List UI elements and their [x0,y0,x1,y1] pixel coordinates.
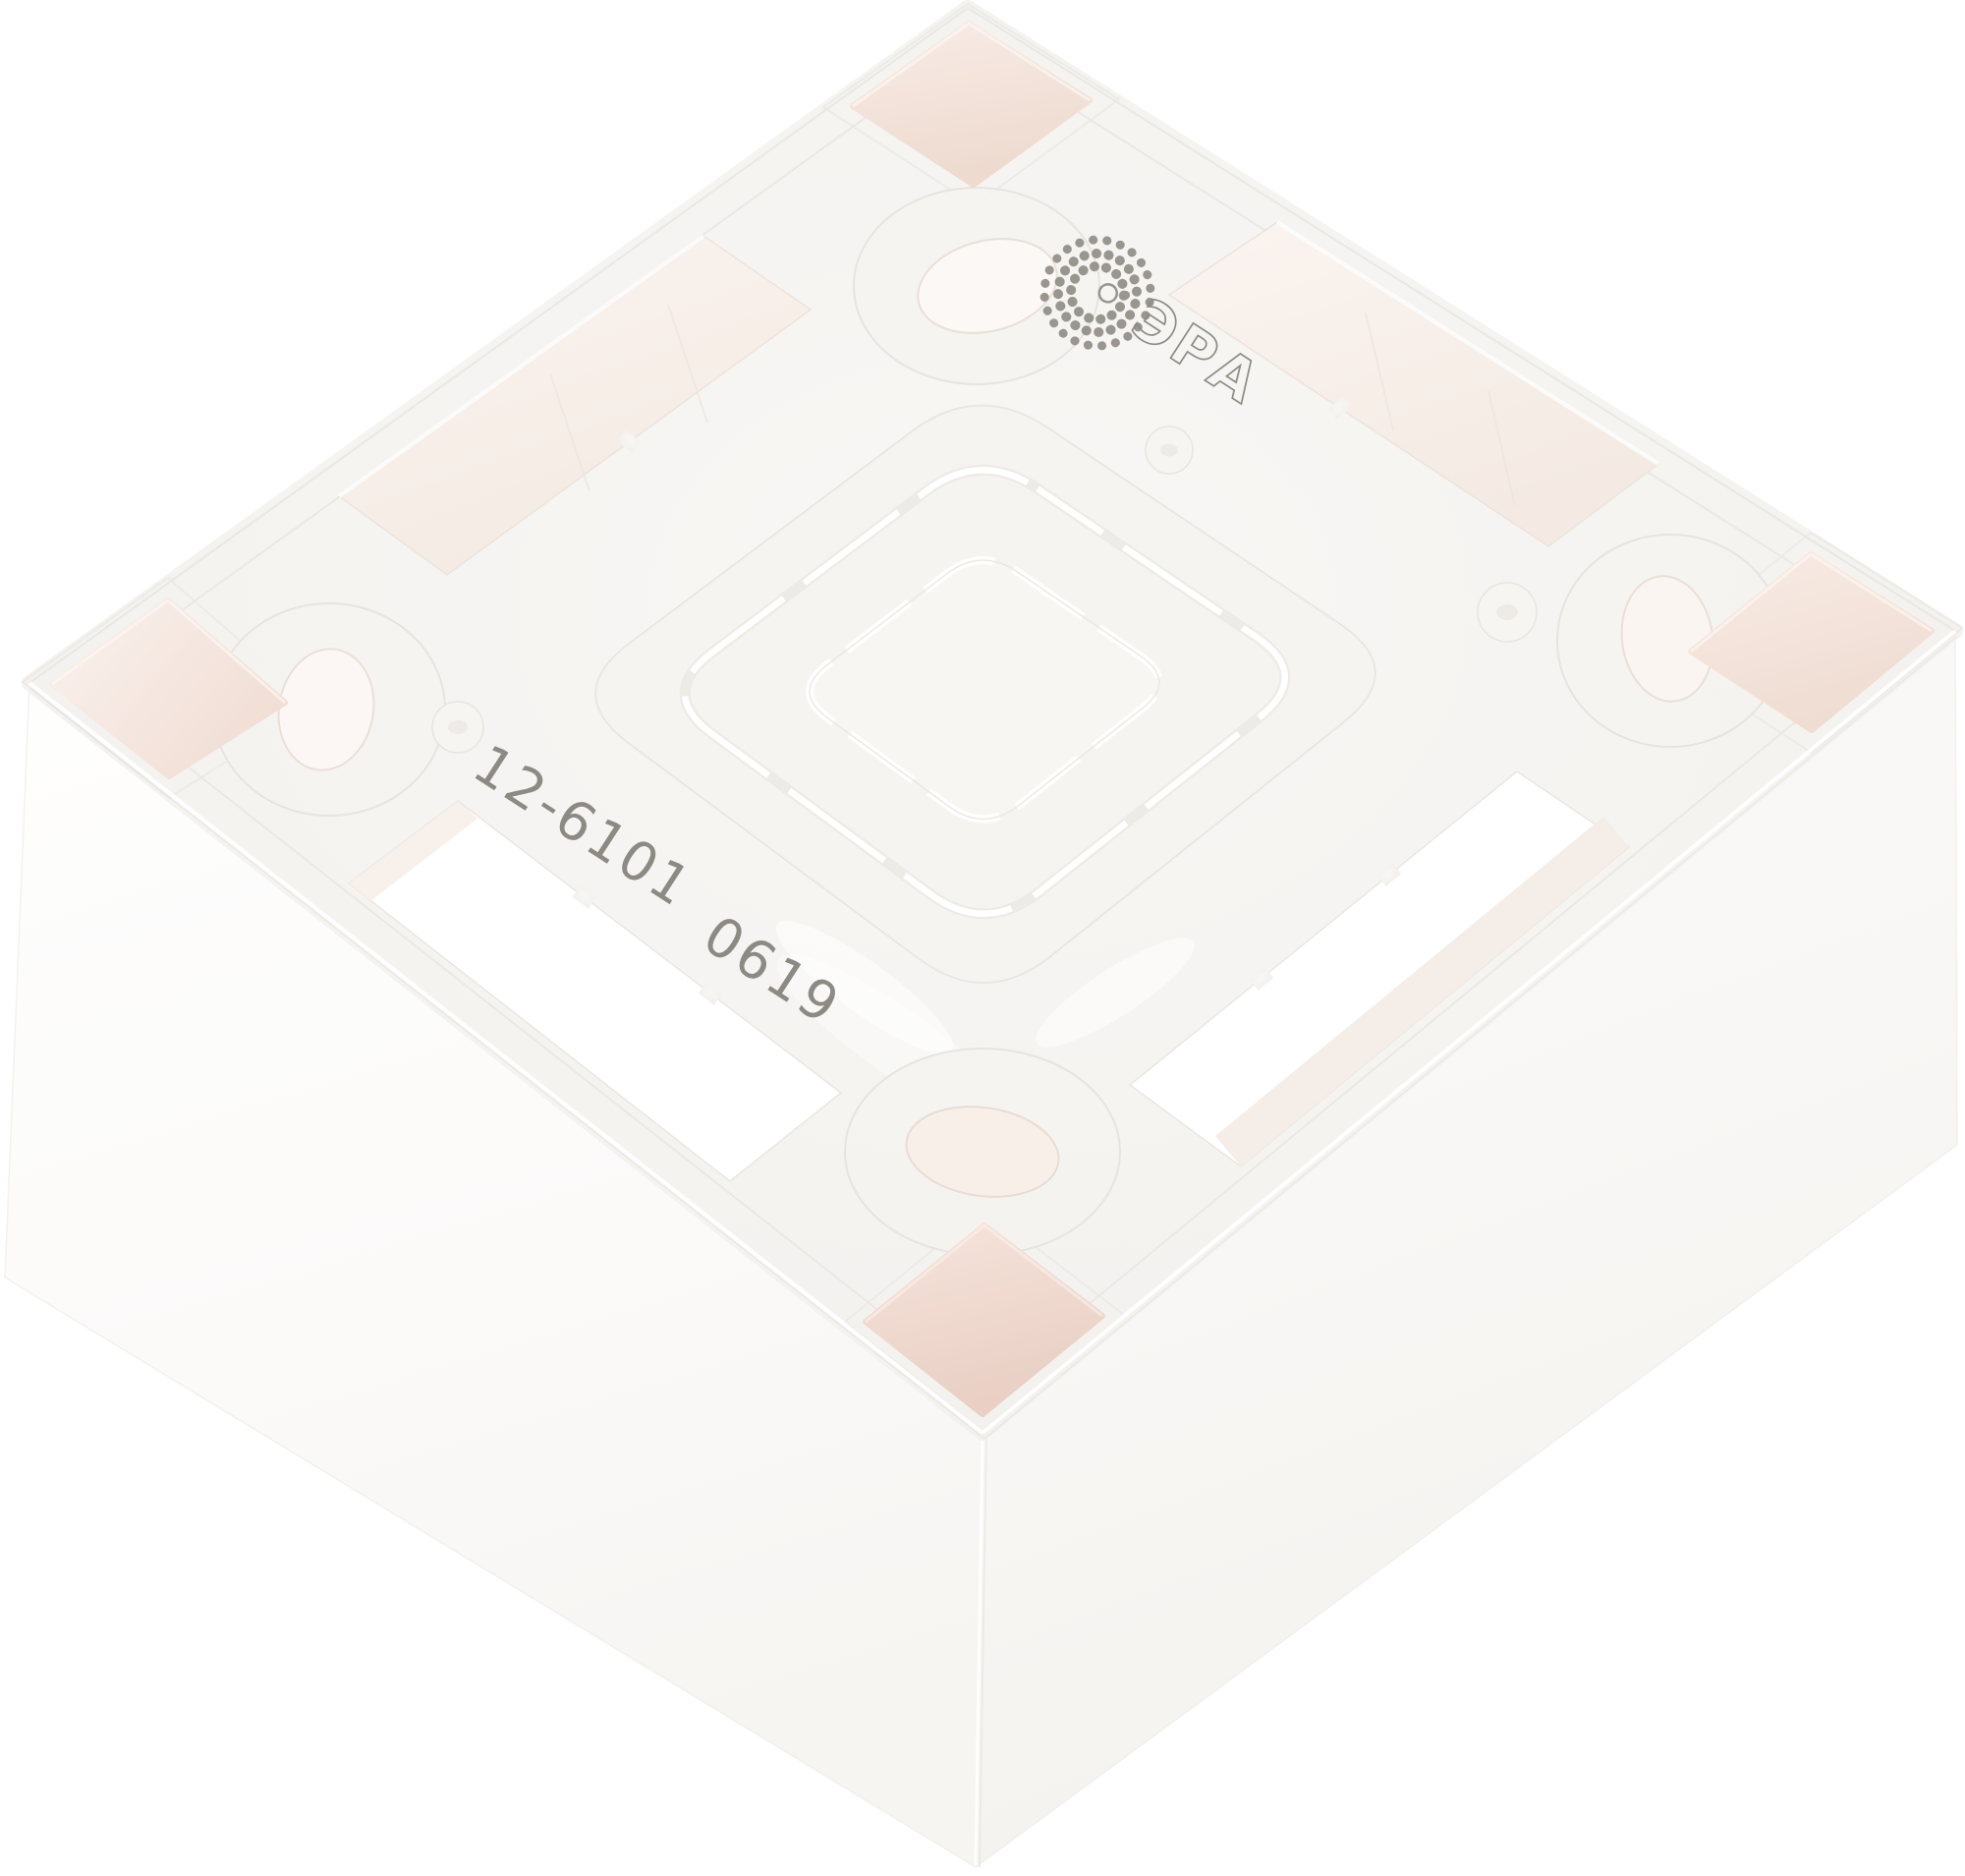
screw-boss-2 [1478,583,1537,642]
screw-boss-3 [1146,426,1193,474]
screw-boss-1 [432,702,483,753]
product-photo: ЭРА 12-6101 0619 [0,0,1965,1876]
junction-box-illustration: ЭРА 12-6101 0619 [0,0,1965,1876]
